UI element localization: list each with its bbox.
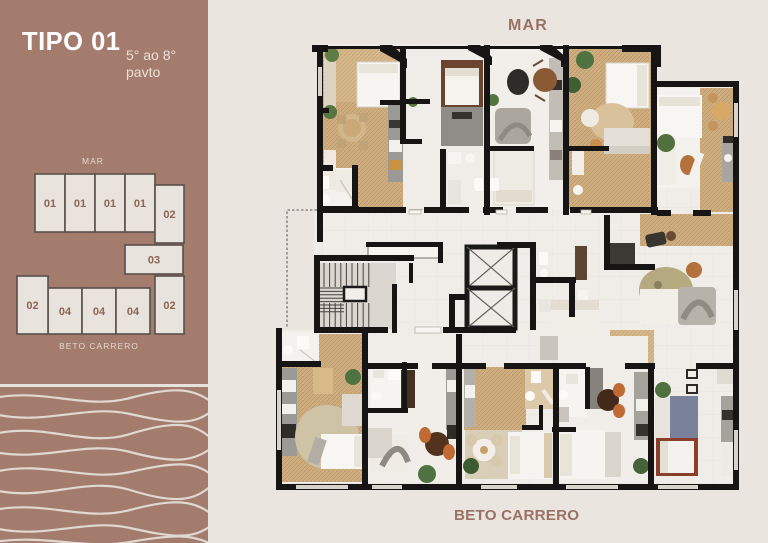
svg-text:01: 01 — [74, 198, 86, 210]
svg-text:04: 04 — [59, 306, 72, 318]
svg-text:02: 02 — [163, 209, 175, 221]
svg-text:pavto: pavto — [126, 64, 160, 80]
svg-text:01: 01 — [44, 198, 56, 210]
svg-text:BETO CARRERO: BETO CARRERO — [59, 341, 139, 351]
svg-text:MAR: MAR — [82, 156, 104, 166]
svg-text:04: 04 — [93, 306, 106, 318]
svg-text:01: 01 — [104, 198, 116, 210]
svg-text:MAR: MAR — [508, 17, 548, 34]
svg-text:BETO CARRERO: BETO CARRERO — [454, 507, 579, 524]
svg-text:5° ao 8°: 5° ao 8° — [126, 47, 176, 63]
svg-text:02: 02 — [163, 300, 175, 312]
svg-text:TIPO 01: TIPO 01 — [22, 28, 120, 56]
svg-text:03: 03 — [148, 255, 160, 267]
svg-text:01: 01 — [134, 198, 146, 210]
svg-text:02: 02 — [26, 300, 38, 312]
svg-text:04: 04 — [127, 306, 140, 318]
